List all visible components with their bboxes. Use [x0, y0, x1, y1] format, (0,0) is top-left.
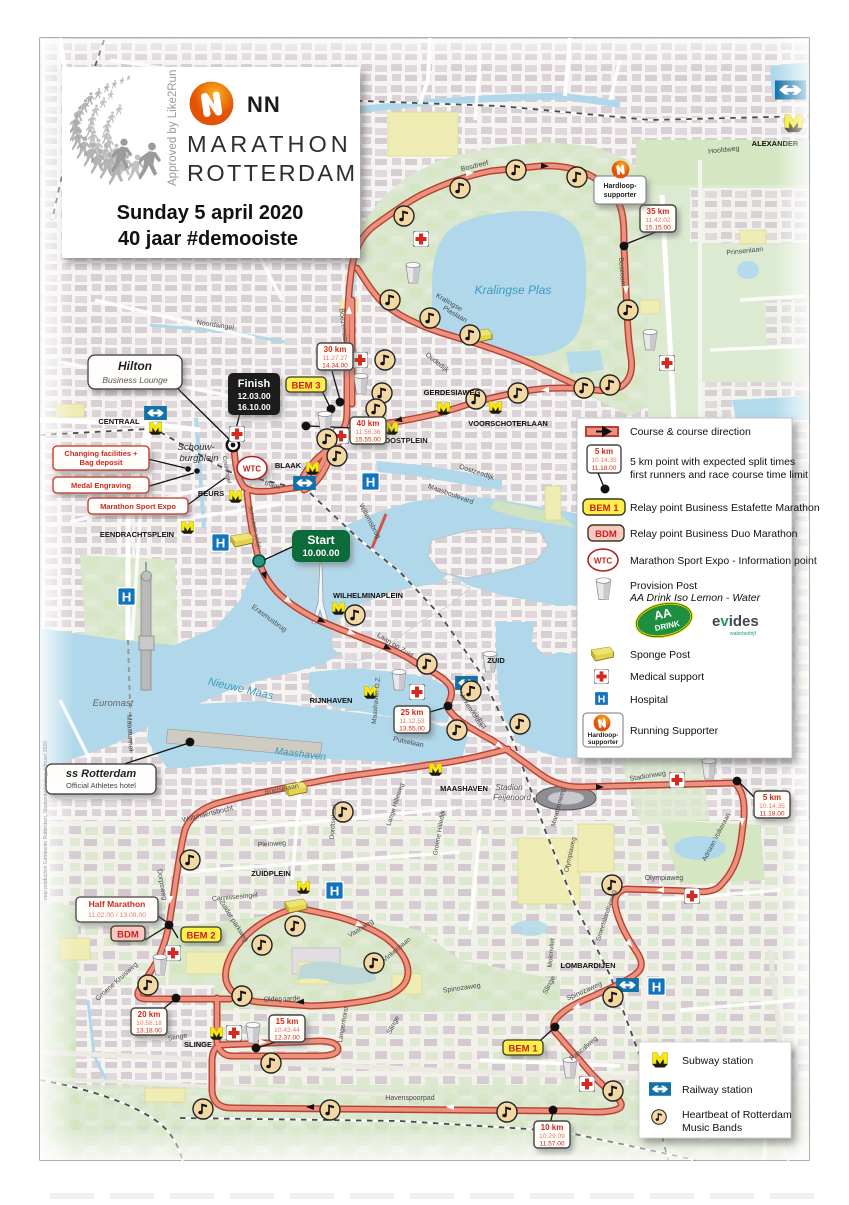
- svg-text:Finish: Finish: [238, 378, 271, 390]
- svg-text:11.02.00 / 13.09.00: 11.02.00 / 13.09.00: [88, 912, 146, 919]
- svg-text:OOSTPLEIN: OOSTPLEIN: [384, 436, 427, 445]
- svg-text:Official Athletes hotel: Official Athletes hotel: [66, 781, 136, 790]
- svg-text:Euromast: Euromast: [93, 698, 134, 709]
- svg-text:Hardloop-: Hardloop-: [603, 183, 637, 190]
- svg-text:LOMBARDIJEN: LOMBARDIJEN: [560, 961, 615, 970]
- svg-text:Sunday 5 april 2020: Sunday 5 april 2020: [117, 202, 304, 224]
- svg-text:10.14.35: 10.14.35: [591, 457, 617, 464]
- svg-text:Olympiaweg: Olympiaweg: [645, 875, 684, 882]
- svg-text:AA Drink Iso Lemon - Water: AA Drink Iso Lemon - Water: [629, 592, 761, 604]
- svg-text:10.14.35: 10.14.35: [759, 803, 785, 810]
- svg-text:first runners and race course: first runners and race course time limit: [630, 469, 808, 481]
- svg-text:10.43.44: 10.43.44: [274, 1027, 300, 1034]
- svg-text:supporter: supporter: [604, 192, 637, 199]
- svg-text:Provision Post: Provision Post: [630, 580, 697, 592]
- svg-text:BEM 1: BEM 1: [508, 1044, 538, 1055]
- svg-text:35 km: 35 km: [647, 207, 670, 216]
- svg-text:30 km: 30 km: [324, 345, 347, 354]
- svg-text:40 jaar #demooiste: 40 jaar #demooiste: [118, 228, 298, 250]
- svg-text:Subway station: Subway station: [682, 1055, 753, 1067]
- svg-text:BEM 3: BEM 3: [291, 381, 320, 392]
- svg-text:5 km: 5 km: [763, 793, 781, 802]
- svg-text:15.55.00: 15.55.00: [355, 437, 381, 444]
- svg-text:GERDESIAWEG: GERDESIAWEG: [424, 388, 481, 397]
- svg-text:Railway station: Railway station: [682, 1084, 753, 1096]
- svg-text:5 km point with expected split: 5 km point with expected split times: [630, 456, 795, 468]
- svg-text:11.12.53: 11.12.53: [399, 718, 425, 725]
- svg-text:SLINGE: SLINGE: [184, 1040, 212, 1049]
- svg-text:Stadion: Stadion: [495, 783, 523, 792]
- svg-text:11.57.00: 11.57.00: [539, 1141, 565, 1148]
- svg-text:20 km: 20 km: [138, 1010, 161, 1019]
- svg-text:Running Supporter: Running Supporter: [630, 725, 719, 737]
- svg-text:BEM 2: BEM 2: [186, 931, 215, 942]
- svg-text:Kralingse Plas: Kralingse Plas: [475, 283, 552, 297]
- svg-text:BDM: BDM: [595, 529, 617, 540]
- svg-text:11.42.02: 11.42.02: [645, 217, 671, 224]
- svg-text:evides: evides: [712, 613, 759, 630]
- svg-text:Havenspoorpad: Havenspoorpad: [385, 1095, 435, 1102]
- svg-text:15.15.00: 15.15.00: [645, 225, 671, 232]
- svg-text:WILHELMINAPLEIN: WILHELMINAPLEIN: [333, 591, 403, 600]
- svg-text:5 km: 5 km: [595, 447, 613, 456]
- svg-text:Start: Start: [307, 533, 334, 547]
- svg-text:Sponge Post: Sponge Post: [630, 649, 690, 661]
- svg-text:Marathon Sport Expo: Marathon Sport Expo: [100, 502, 176, 511]
- svg-text:Medical support: Medical support: [630, 671, 704, 683]
- svg-text:ZUID: ZUID: [487, 656, 505, 665]
- svg-text:MARATHON: MARATHON: [187, 131, 352, 157]
- svg-text:BDM: BDM: [117, 930, 139, 941]
- svg-text:NN: NN: [247, 92, 281, 117]
- svg-text:MAASHAVEN: MAASHAVEN: [440, 784, 488, 793]
- svg-text:Oldegaarde: Oldegaarde: [264, 995, 301, 1003]
- svg-text:10.00.00: 10.00.00: [303, 548, 340, 559]
- svg-text:10.29.09: 10.29.09: [539, 1133, 565, 1140]
- svg-text:Business Lounge: Business Lounge: [102, 375, 167, 385]
- svg-text:Bag deposit: Bag deposit: [80, 458, 123, 467]
- svg-text:Hilton: Hilton: [118, 359, 152, 373]
- svg-text:15 km: 15 km: [276, 1017, 299, 1026]
- svg-text:11.18.00: 11.18.00: [592, 465, 617, 472]
- svg-text:waterbedrijf: waterbedrijf: [730, 631, 756, 637]
- svg-text:Hardloop-: Hardloop-: [588, 732, 619, 739]
- svg-text:Marathon Sport Expo - Informat: Marathon Sport Expo - Information point: [630, 555, 817, 567]
- svg-text:WTC: WTC: [243, 465, 261, 474]
- svg-text:Course & course direction: Course & course direction: [630, 426, 751, 438]
- svg-text:map production Gemeente Rotter: map production Gemeente Rotterdam, Stads…: [43, 741, 49, 900]
- svg-text:Schouw-: Schouw-: [178, 442, 215, 453]
- svg-text:12.03.00: 12.03.00: [237, 391, 270, 401]
- svg-text:40 km: 40 km: [357, 419, 380, 428]
- svg-text:Approved by Like2Run: Approved by Like2Run: [167, 70, 179, 186]
- svg-text:burgplein: burgplein: [179, 453, 218, 464]
- svg-text:CENTRAAL: CENTRAAL: [98, 417, 140, 426]
- svg-text:10.58.18: 10.58.18: [136, 1020, 162, 1027]
- svg-text:Medal Engraving: Medal Engraving: [71, 481, 131, 490]
- svg-text:Relay point Business Duo Marat: Relay point Business Duo Marathon: [630, 528, 798, 540]
- svg-text:Hospital: Hospital: [630, 694, 668, 706]
- svg-text:16.10.00: 16.10.00: [237, 402, 270, 412]
- svg-text:Half Marathon: Half Marathon: [89, 899, 146, 909]
- svg-text:11.27.27: 11.27.27: [322, 355, 348, 362]
- svg-text:ZUIDPLEIN: ZUIDPLEIN: [251, 869, 291, 878]
- svg-text:ss Rotterdam: ss Rotterdam: [66, 768, 137, 780]
- svg-text:ROTTERDAM: ROTTERDAM: [187, 160, 357, 186]
- svg-text:BEURS: BEURS: [198, 489, 224, 498]
- svg-text:14.34.00: 14.34.00: [322, 363, 348, 370]
- svg-text:11.56.36: 11.56.36: [355, 429, 381, 436]
- svg-text:supporter: supporter: [588, 739, 619, 746]
- svg-text:13.18.00: 13.18.00: [136, 1028, 162, 1035]
- svg-text:12.37.00: 12.37.00: [274, 1035, 300, 1042]
- svg-text:Heartbeat of Rotterdam: Heartbeat of Rotterdam: [682, 1109, 792, 1121]
- svg-text:Feijenoord: Feijenoord: [493, 793, 531, 802]
- svg-text:13.55.00: 13.55.00: [399, 726, 425, 733]
- svg-text:Changing facilities +: Changing facilities +: [64, 449, 138, 458]
- svg-text:Music Bands: Music Bands: [682, 1122, 742, 1134]
- svg-text:WTC: WTC: [594, 557, 612, 566]
- svg-text:BLAAK: BLAAK: [275, 461, 302, 470]
- svg-text:Relay point Business Estafette: Relay point Business Estafette Marathon: [630, 502, 820, 514]
- svg-text:11.18.00: 11.18.00: [759, 811, 785, 818]
- svg-text:EENDRACHTSPLEIN: EENDRACHTSPLEIN: [100, 530, 174, 539]
- svg-text:10 km: 10 km: [541, 1123, 564, 1132]
- svg-text:RIJNHAVEN: RIJNHAVEN: [310, 696, 353, 705]
- svg-text:25 km: 25 km: [401, 708, 424, 717]
- svg-text:BEM 1: BEM 1: [589, 503, 619, 514]
- svg-text:VOORSCHOTERLAAN: VOORSCHOTERLAAN: [468, 419, 548, 428]
